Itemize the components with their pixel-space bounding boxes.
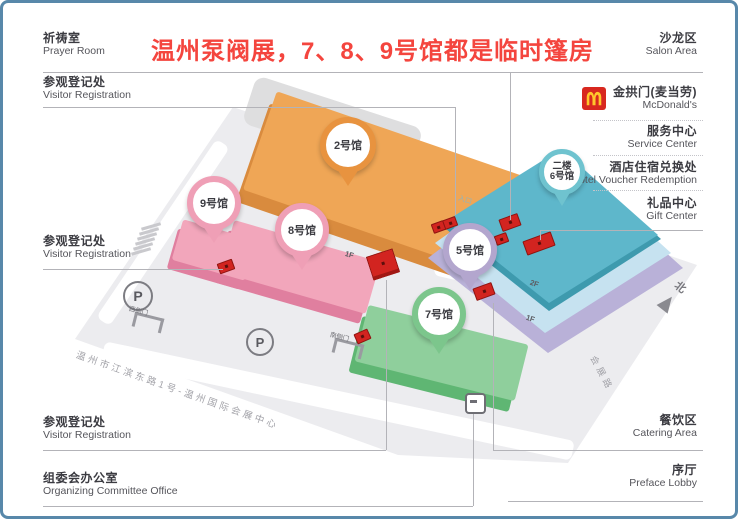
pin-hall-8: 8号馆 bbox=[275, 203, 329, 257]
label-hotel-voucher: 酒店住宿兑换处Hotel Voucher Redemption bbox=[572, 160, 698, 187]
label-visitor-registration-top: 参观登记处Visitor Registration bbox=[43, 75, 131, 102]
label-visitor-registration-bottom: 参观登记处Visitor Registration bbox=[43, 415, 131, 442]
parking-icon: P bbox=[246, 328, 274, 356]
label-mcdonalds: 金拱门(麦当劳) McDonald's bbox=[582, 85, 697, 112]
mcdonalds-logo-icon bbox=[582, 87, 606, 110]
venue-map: 瓯江路 会展路 温州市江滨东路1号-温州国际会展中心 北 1F 2F 1F 入口… bbox=[0, 0, 738, 519]
label-organizing-committee: 组委会办公室Organizing Committee Office bbox=[43, 471, 178, 498]
label-service-center: 服务中心Service Center bbox=[628, 124, 697, 151]
page-title: 温州泵阀展，7、8、9号馆都是临时篷房 bbox=[151, 31, 594, 66]
label-gift-center: 礼品中心Gift Center bbox=[646, 196, 697, 223]
label-prayer-room: 祈祷室Prayer Room bbox=[43, 31, 105, 58]
pin-hall-2: 2号馆 bbox=[320, 117, 376, 173]
pin-hall-7: 7号馆 bbox=[412, 287, 466, 341]
pin-hall-9: 9号馆 bbox=[187, 176, 241, 230]
pin-hall-5: 5号馆 bbox=[443, 223, 497, 277]
label-salon-area: 沙龙区Salon Area bbox=[646, 31, 697, 58]
label-catering-area: 餐饮区Catering Area bbox=[633, 413, 697, 440]
pin-hall-6: 二楼6号馆 bbox=[539, 149, 585, 195]
label-visitor-registration-mid: 参观登记处Visitor Registration bbox=[43, 234, 131, 261]
label-preface-lobby: 序厅Preface Lobby bbox=[629, 463, 697, 490]
ticket-barrier-icon bbox=[465, 393, 486, 414]
golden-arches-icon bbox=[585, 90, 603, 106]
